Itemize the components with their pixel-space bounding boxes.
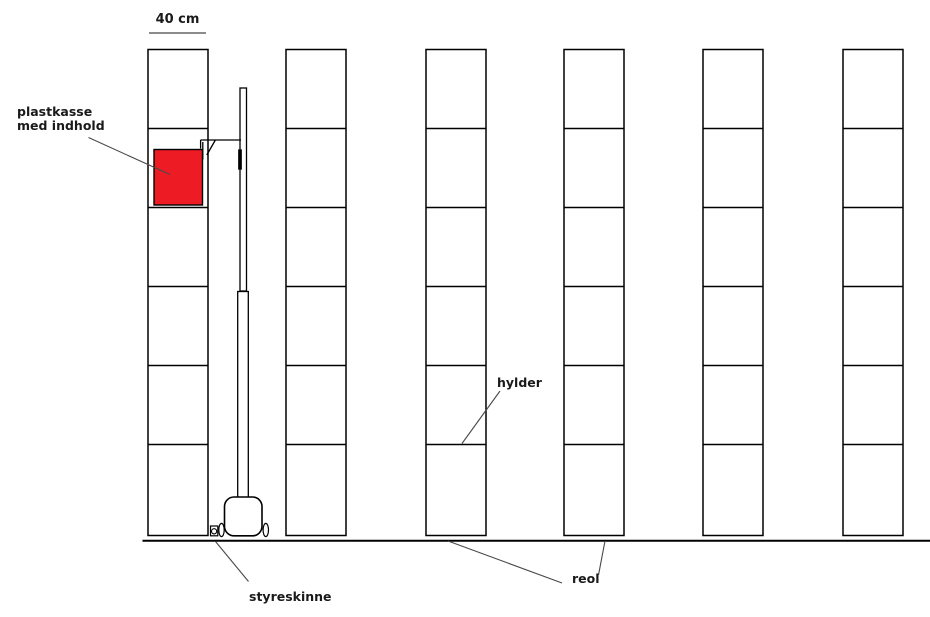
leader-guide-rail [216, 542, 249, 582]
rack-outline [148, 50, 208, 536]
plastic-box-label-line1: plastkasse [17, 105, 105, 119]
racks [148, 50, 903, 536]
robot-mast-lower [238, 292, 249, 498]
dimension-label: 40 cm [149, 13, 206, 27]
rack-outline [564, 50, 624, 536]
rack-outline [703, 50, 763, 536]
rack-outline [426, 50, 486, 536]
rack-outline [843, 50, 903, 536]
diagram-canvas: 40 cm plastkasse med indhold hylder reol… [0, 0, 930, 617]
wheel-left [219, 523, 224, 536]
wheel-right [263, 523, 268, 536]
shelves-label: hylder [497, 376, 542, 390]
guide-rail-label: styreskinne [249, 590, 332, 604]
leader-rack-left [448, 541, 562, 583]
leader-rack-right [599, 541, 606, 575]
rack-outline [286, 50, 346, 536]
mast-carriage [239, 150, 241, 169]
robot-mast-upper [240, 88, 247, 291]
rack-label: reol [572, 572, 600, 586]
plastic-box [154, 150, 203, 206]
diagram-drawing [0, 0, 930, 617]
guide-rail-roller [212, 529, 217, 534]
guide-rail-block [211, 526, 218, 536]
plastic-box-label: plastkasse med indhold [17, 105, 105, 133]
robot-base [225, 497, 263, 536]
plastic-box-label-line2: med indhold [17, 119, 105, 133]
